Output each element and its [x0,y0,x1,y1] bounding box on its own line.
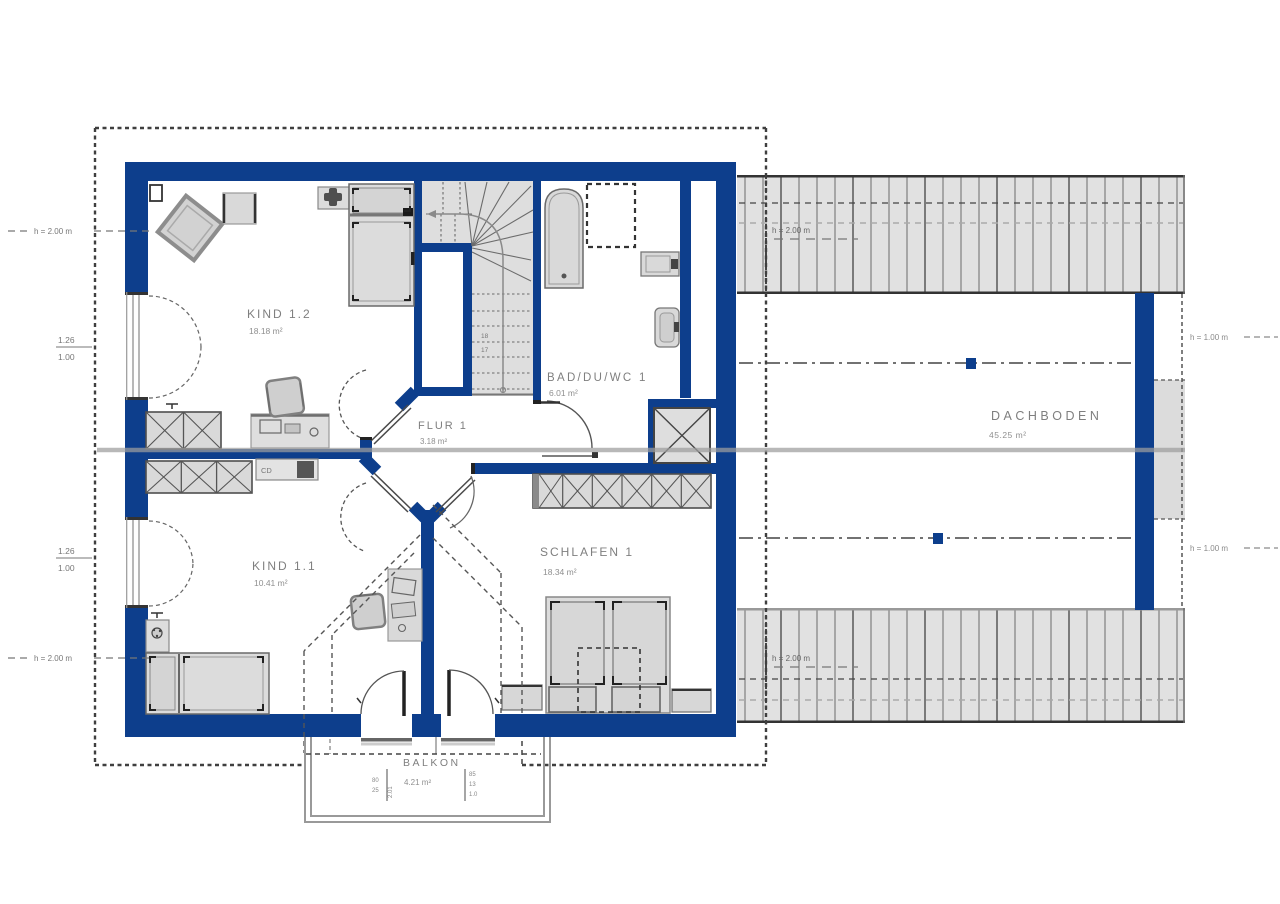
svg-text:18: 18 [481,333,489,340]
svg-text:FLUR 1: FLUR 1 [418,420,468,432]
svg-text:6.01 m²: 6.01 m² [549,388,578,398]
svg-text:h = 1.00 m: h = 1.00 m [1190,544,1228,553]
svg-text:1.00: 1.00 [58,563,75,573]
svg-text:17: 17 [481,347,489,354]
svg-text:2.01: 2.01 [388,786,394,798]
svg-text:SCHLAFEN 1: SCHLAFEN 1 [540,545,634,559]
svg-text:KIND 1.1: KIND 1.1 [252,559,317,573]
svg-text:45.25 m²: 45.25 m² [989,430,1027,440]
svg-text:1.26: 1.26 [58,335,75,345]
svg-text:1.26: 1.26 [58,546,75,556]
svg-text:h = 1.00 m: h = 1.00 m [1190,333,1228,342]
svg-text:18.34 m²: 18.34 m² [543,567,577,577]
svg-text:h = 2.00 m: h = 2.00 m [772,226,810,235]
svg-text:13: 13 [469,782,476,788]
svg-text:DACHBODEN: DACHBODEN [991,409,1102,423]
svg-text:BALKON: BALKON [403,757,461,769]
svg-text:80: 80 [372,778,379,784]
svg-text:1.00: 1.00 [58,352,75,362]
svg-text:4.21 m²: 4.21 m² [404,778,431,787]
svg-text:25: 25 [372,788,379,794]
svg-text:85: 85 [469,772,476,778]
svg-text:BAD/DU/WC 1: BAD/DU/WC 1 [547,372,648,384]
svg-text:10.41 m²: 10.41 m² [254,578,288,588]
svg-text:18.18 m²: 18.18 m² [249,326,283,336]
svg-text:h = 2.00 m: h = 2.00 m [34,654,72,663]
svg-text:CD: CD [261,466,272,475]
svg-text:h = 2.00 m: h = 2.00 m [34,227,72,236]
svg-text:KIND 1.2: KIND 1.2 [247,307,312,321]
svg-text:1.0: 1.0 [469,792,478,798]
svg-text:h = 2.00 m: h = 2.00 m [772,654,810,663]
svg-text:3.18 m²: 3.18 m² [420,437,447,446]
